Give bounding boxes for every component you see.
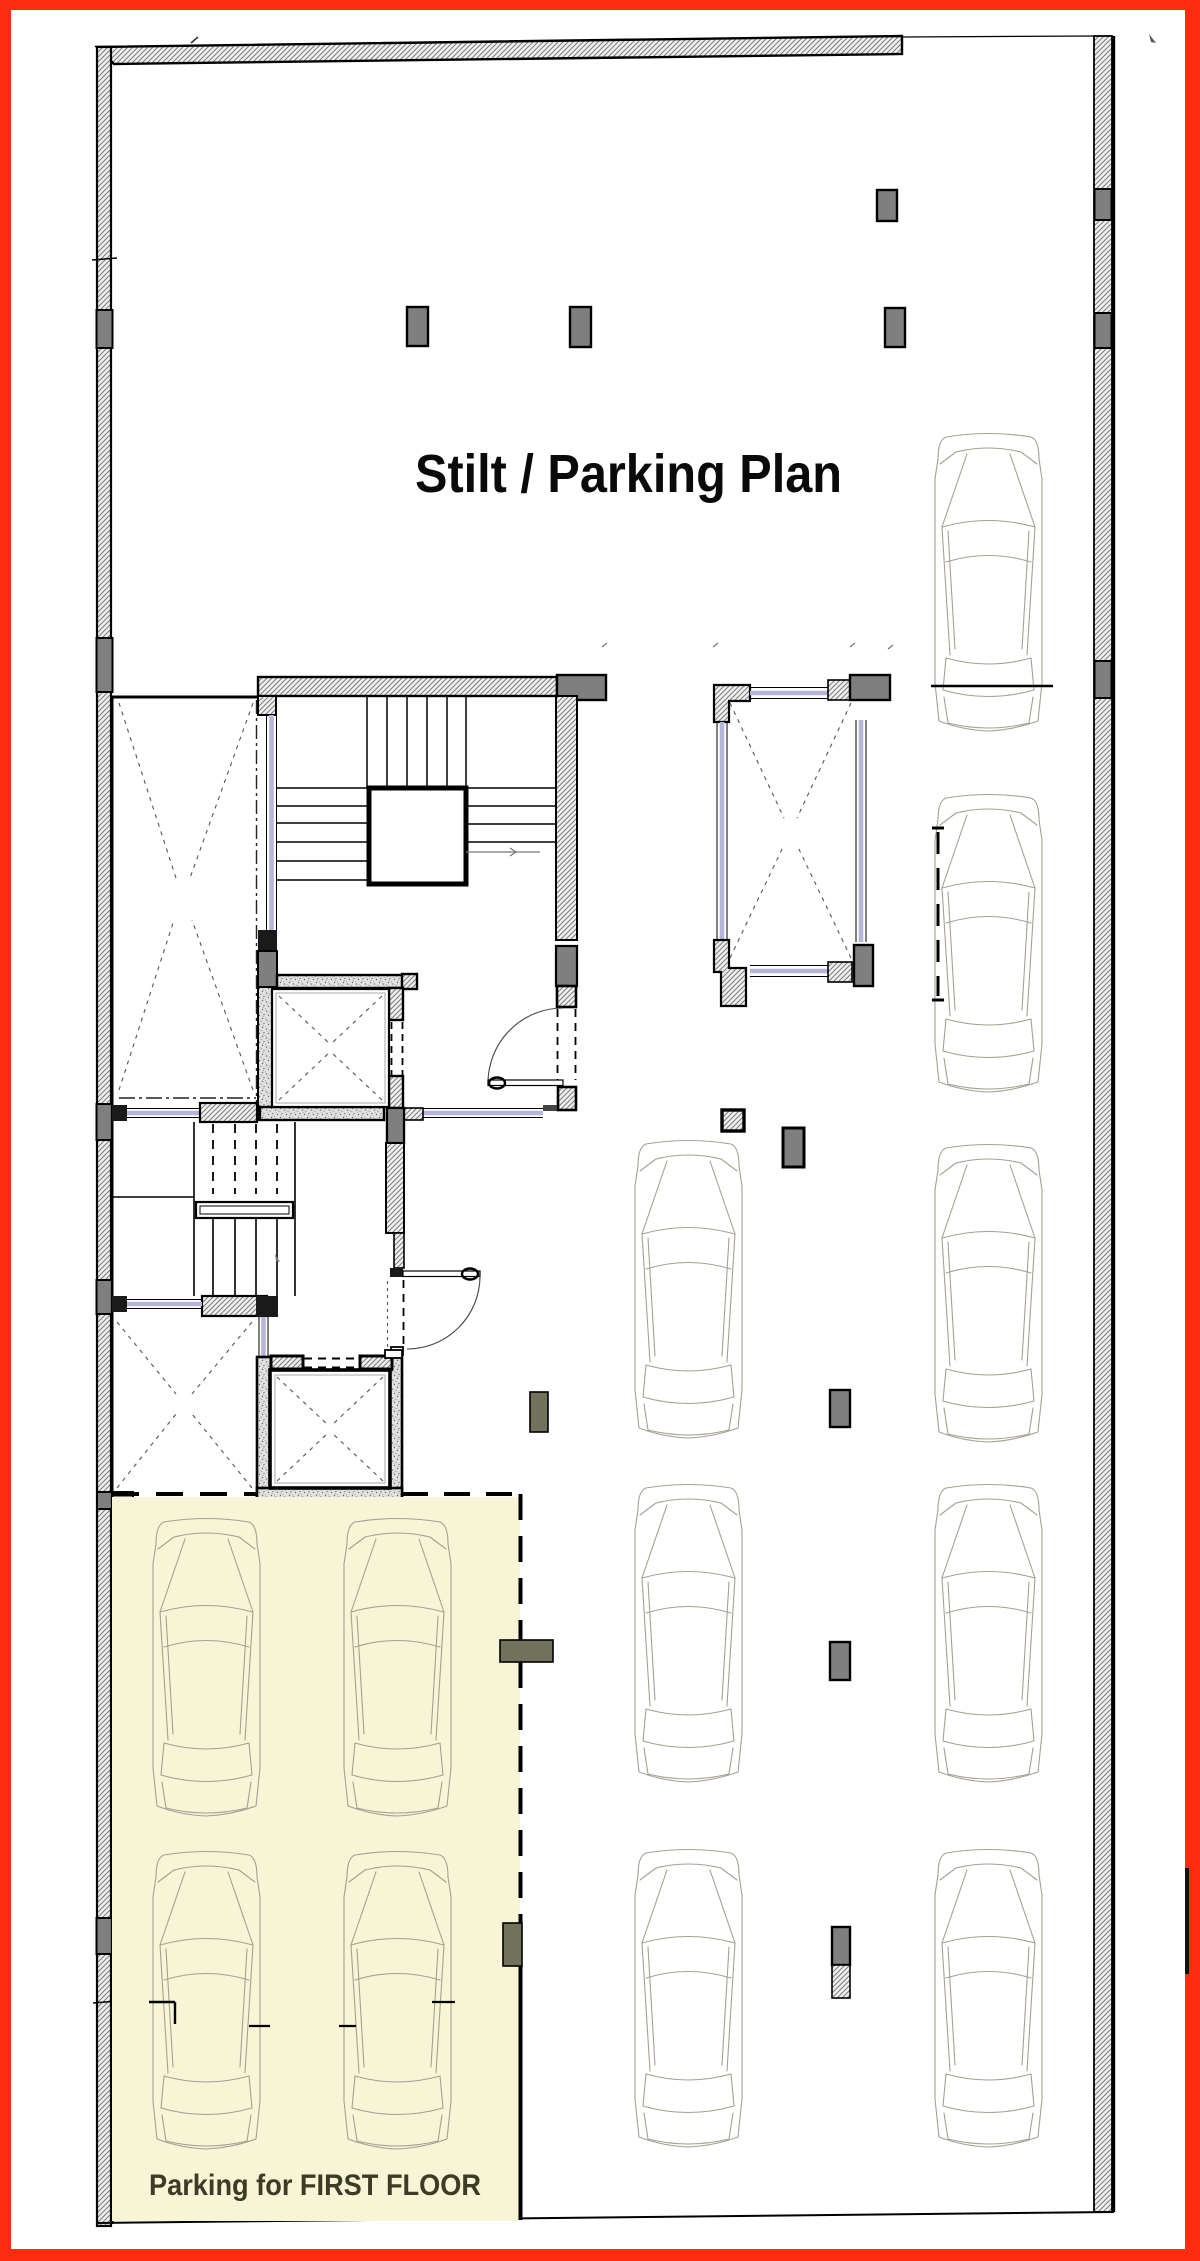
svg-text:Stilt / Parking Plan: Stilt / Parking Plan <box>415 444 842 504</box>
svg-text:Parking for FIRST FLOOR: Parking for FIRST FLOOR <box>149 2169 481 2202</box>
